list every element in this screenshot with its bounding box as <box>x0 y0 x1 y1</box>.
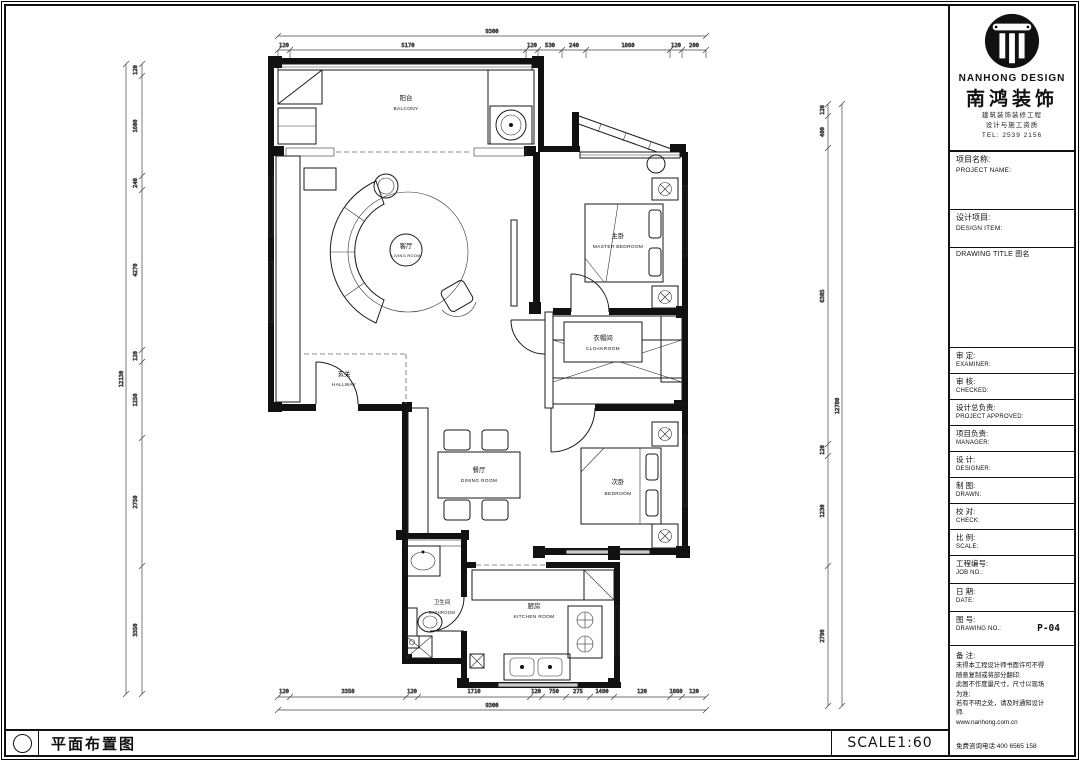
row-examiner: 审 定:EXAMINER: <box>950 348 1074 374</box>
brand-name-cn: 南鸿装饰 <box>966 84 1058 111</box>
sheet-title: 平面布置图 <box>39 731 831 755</box>
svg-text:餐厅: 餐厅 <box>473 465 487 474</box>
svg-text:2790: 2790 <box>820 629 826 642</box>
dimension-left: 120 1600 240 4270 120 1250 2750 3350 121… <box>119 61 145 697</box>
kitchen: 厨房 KITCHEN ROOM <box>470 570 614 680</box>
row-job-no: 工程编号:JOB NO.: <box>950 556 1074 584</box>
svg-text:3350: 3350 <box>133 623 139 636</box>
svg-text:MASTER BEDROOM: MASTER BEDROOM <box>593 244 643 250</box>
project-label-en: PROJECT NAME: <box>956 166 1068 175</box>
row-check: 校 对:CHECK: <box>950 504 1074 530</box>
drawing-title-field: DRAWING TITLE 图名 <box>950 248 1074 348</box>
svg-text:HALLWAY: HALLWAY <box>332 382 357 388</box>
row-drawn: 制 图:DRAWN: <box>950 478 1074 504</box>
nanhong-logo-icon <box>983 12 1041 70</box>
row-date: 日 期:DATE: <box>950 584 1074 612</box>
drawing-sheet: 9300 120 5170 120 530 240 1860 120 200 1… <box>0 0 1080 761</box>
walls <box>268 56 690 688</box>
brand-tagline-1: 建筑装饰装修工程 <box>982 111 1042 121</box>
title-bar-icon-cell <box>6 731 39 755</box>
svg-text:玄关: 玄关 <box>338 369 352 378</box>
row-manager: 项目负责:MANAGER: <box>950 426 1074 452</box>
svg-text:120: 120 <box>527 43 537 49</box>
balcony: 阳台 BALCONY <box>278 70 534 144</box>
svg-text:120: 120 <box>531 689 541 695</box>
svg-text:KITCHEN ROOM: KITCHEN ROOM <box>514 614 555 620</box>
design-label-cn: 设计项目: <box>956 212 1068 224</box>
svg-text:LIVING ROOM: LIVING ROOM <box>391 253 420 258</box>
svg-text:6385: 6385 <box>820 289 826 302</box>
svg-text:120: 120 <box>637 689 647 695</box>
svg-text:1250: 1250 <box>133 393 139 406</box>
dimension-right: 120 400 6385 120 1230 2790 12780 <box>820 101 845 709</box>
svg-text:1710: 1710 <box>467 689 480 695</box>
svg-text:BATHROOM: BATHROOM <box>429 610 455 615</box>
brand-tagline-3: TEL: 2539 2156 <box>982 131 1042 141</box>
dimension-bottom: 120 3350 120 1710 120 750 275 1490 120 1… <box>275 689 709 713</box>
svg-text:12780: 12780 <box>835 398 841 415</box>
svg-text:1230: 1230 <box>820 504 826 517</box>
design-label-en: DESIGN ITEM: <box>956 224 1068 233</box>
svg-text:BALCONY: BALCONY <box>393 106 419 112</box>
title-block: NANHONG DESIGN 南鸿装饰 建筑装饰装修工程 设计与施工资质 TEL… <box>948 6 1074 755</box>
svg-text:5170: 5170 <box>401 43 414 49</box>
master-bedroom: 主卧 MASTER BEDROOM <box>585 155 678 308</box>
svg-text:1860: 1860 <box>669 689 682 695</box>
svg-text:3350: 3350 <box>341 689 354 695</box>
svg-text:120: 120 <box>689 689 699 695</box>
sheet-title-bar: 平面布置图 SCALE1:60 <box>6 729 948 755</box>
svg-text:120: 120 <box>279 43 289 49</box>
bathroom: 卫生间 BATHROOM <box>406 546 455 658</box>
brand-tagline-2: 设计与施工资质 <box>986 121 1039 131</box>
cloakroom: 衣帽间 CLOAKROOM <box>553 316 682 404</box>
svg-text:衣帽间: 衣帽间 <box>593 333 613 342</box>
svg-text:1490: 1490 <box>595 689 608 695</box>
svg-text:120: 120 <box>133 351 139 361</box>
svg-text:120: 120 <box>820 445 826 455</box>
svg-text:240: 240 <box>133 178 139 188</box>
svg-text:240: 240 <box>569 43 579 49</box>
svg-text:次卧: 次卧 <box>612 477 626 486</box>
svg-text:400: 400 <box>820 127 826 137</box>
row-checked: 审 核:CHECKED: <box>950 374 1074 400</box>
second-bedroom: 次卧 BEDROOM <box>581 422 678 548</box>
notes-label: 备 注: <box>956 650 1068 661</box>
living-room: 客厅 LIVING ROOM <box>276 156 517 402</box>
svg-text:卫生间: 卫生间 <box>434 598 451 606</box>
svg-text:2750: 2750 <box>133 495 139 508</box>
svg-text:1860: 1860 <box>621 43 634 49</box>
project-label-cn: 项目名称: <box>956 154 1068 166</box>
svg-text:120: 120 <box>820 105 826 115</box>
row-scale: 比 例:SCALE: <box>950 530 1074 556</box>
floor-plan: 9300 120 5170 120 530 240 1860 120 200 1… <box>6 6 946 729</box>
svg-text:750: 750 <box>549 689 559 695</box>
hallway: 玄关 HALLWAY <box>332 369 357 388</box>
svg-text:120: 120 <box>407 689 417 695</box>
notes-section: 备 注: 未得本工程设计师书面许可不得 随意复制或将部分翻印; 此图不作度量尺寸… <box>950 646 1074 755</box>
svg-text:阳台: 阳台 <box>400 93 413 102</box>
svg-text:DINING ROOM: DINING ROOM <box>461 478 497 484</box>
svg-text:120: 120 <box>279 689 289 695</box>
svg-text:9300: 9300 <box>485 29 498 35</box>
svg-text:4270: 4270 <box>133 263 139 276</box>
row-drawing-no: 图 号:DRAWING NO.: P-04 <box>950 612 1074 646</box>
dining-room: 餐厅 DINING ROOM <box>408 408 520 538</box>
drawing-title-label: DRAWING TITLE 图名 <box>956 250 1068 260</box>
svg-text:主卧: 主卧 <box>612 231 626 240</box>
svg-text:275: 275 <box>573 689 583 695</box>
svg-text:厨房: 厨房 <box>528 601 541 610</box>
hotline: 免费咨询电话:400 6565 158 <box>956 740 1068 753</box>
drawing-number-value: P-04 <box>1037 623 1068 634</box>
svg-text:120: 120 <box>133 65 139 75</box>
dashed-lines <box>286 148 526 404</box>
dimension-top: 9300 120 5170 120 530 240 1860 120 200 <box>275 29 709 58</box>
row-project-approved: 设计总负责:PROJECT APPROVED: <box>950 400 1074 426</box>
svg-text:12130: 12130 <box>119 371 125 388</box>
project-name-field: 项目名称: PROJECT NAME: <box>950 152 1074 210</box>
svg-text:BEDROOM: BEDROOM <box>605 491 632 497</box>
svg-text:120: 120 <box>671 43 681 49</box>
brand-name-en: NANHONG DESIGN <box>959 73 1066 84</box>
svg-text:9300: 9300 <box>485 703 498 709</box>
svg-text:1600: 1600 <box>133 119 139 132</box>
svg-text:CLOAKROOM: CLOAKROOM <box>586 346 620 352</box>
scale-label: SCALE1:60 <box>831 731 948 755</box>
design-item-field: 设计项目: DESIGN ITEM: <box>950 210 1074 248</box>
logo-section: NANHONG DESIGN 南鸿装饰 建筑装饰装修工程 设计与施工资质 TEL… <box>950 6 1074 152</box>
svg-text:客厅: 客厅 <box>400 241 414 250</box>
svg-text:200: 200 <box>689 43 699 49</box>
circle-icon <box>13 734 32 753</box>
svg-text:530: 530 <box>545 43 555 49</box>
row-designer: 设 计:DESIGNER: <box>950 452 1074 478</box>
